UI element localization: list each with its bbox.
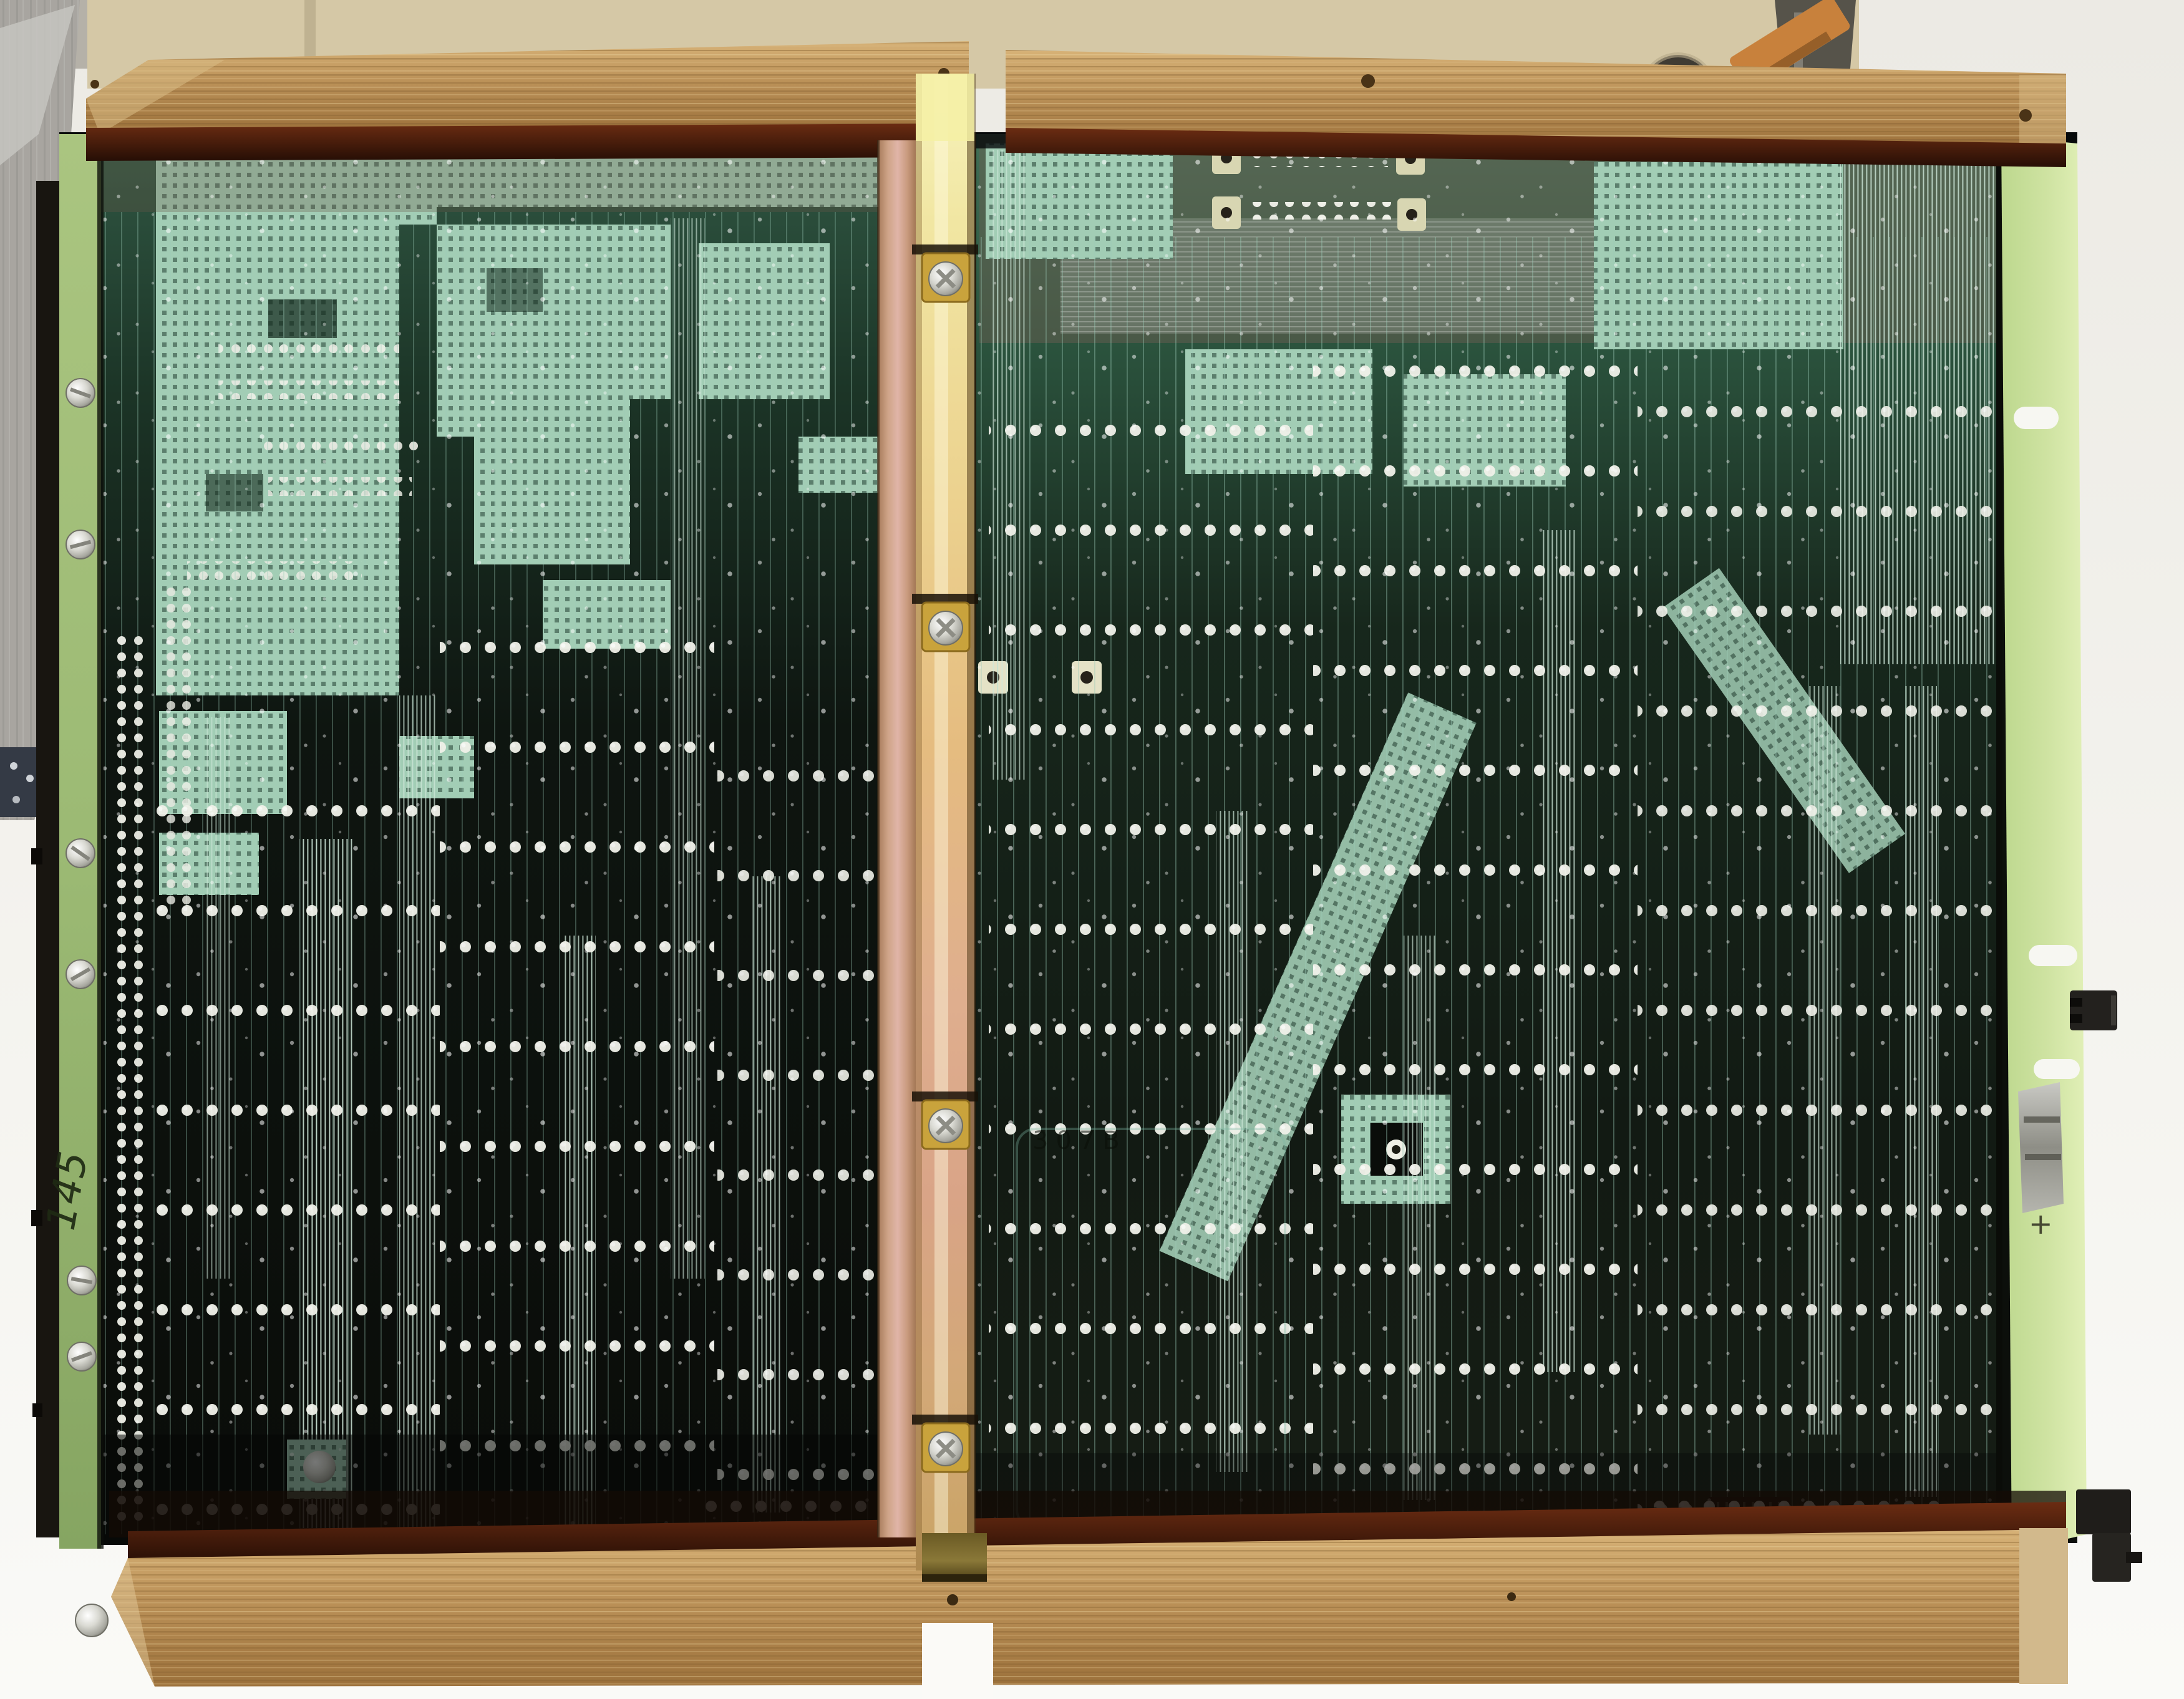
center-bracket [877,74,987,1582]
bracket-flange [878,140,917,1537]
nail-hole [90,80,99,89]
wood-rail-top-left [86,41,969,161]
edge-screw [66,960,95,989]
bracket-tip-shadow [922,1574,987,1582]
connector-pin [10,762,17,770]
bracket-left-shade [916,74,922,1571]
metal-connector-shine [2018,1082,2064,1213]
stain-strip [86,123,969,161]
edge-screw [66,379,95,407]
solder-glints [976,150,2001,1534]
photo-of-pcb-solder-side: 307B 145 [0,0,2184,1699]
edge-strip-shadow [97,134,104,1549]
bracket-screw-assembly [912,1092,978,1149]
plus-marking: + [2029,1207,2053,1241]
nail-hole [1507,1592,1516,1601]
pcb-right-half: 307B [976,134,2002,1545]
nail-hole [1361,74,1375,88]
case-screw-tip [32,1403,42,1417]
wood-notch-gap [922,1623,993,1699]
wood-rail-bottom [109,1491,2068,1699]
connector-stripe [2025,1154,2061,1160]
edge-screw [66,530,95,559]
bracket-top-cap [916,74,974,141]
wood-end-block [2019,1528,2068,1684]
edge-strip-right [2001,136,2087,1552]
edge-screw [67,1266,96,1295]
pcb-left-half [101,134,905,1545]
connector-pin [26,775,34,782]
bracket-tip [922,1533,987,1579]
case-screw-tip [31,848,42,864]
side-switch [2070,990,2117,1030]
edge-screw [66,839,95,868]
edge-screw [67,1342,96,1371]
edge-slot [2014,407,2059,429]
nail-hole [2019,109,2032,122]
edge-slot [2034,1059,2080,1079]
flange-edge-line [877,140,880,1537]
connector-pin [12,796,20,803]
nail-hole [947,1594,958,1605]
bracket-screw-assembly [912,594,978,651]
bracket-screw-assembly [912,244,978,302]
bracket-screw-assembly [912,1415,978,1472]
edge-strip-shadow [1996,136,2002,1549]
corner-screw [75,1604,108,1637]
pcb-photo-canvas: 307B 145 [0,0,2184,1699]
edge-slot [2029,945,2077,966]
connector-stripe [2024,1116,2060,1123]
solder-glints [101,150,901,1534]
